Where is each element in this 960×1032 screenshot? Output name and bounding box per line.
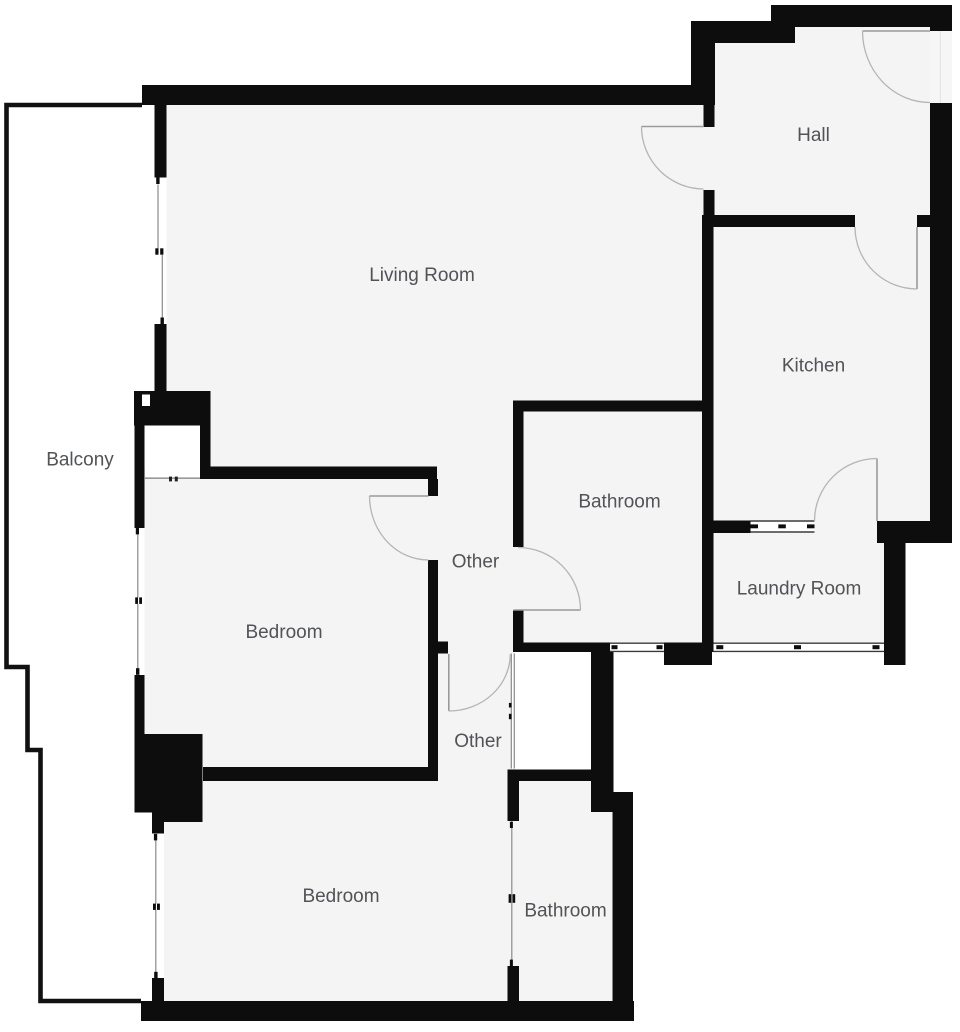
svg-text:Living Room: Living Room xyxy=(369,265,475,286)
svg-text:Kitchen: Kitchen xyxy=(782,356,845,377)
svg-text:Other: Other xyxy=(452,552,500,573)
svg-text:Bathroom: Bathroom xyxy=(578,492,660,513)
svg-text:Balcony: Balcony xyxy=(46,450,114,471)
svg-text:Hall: Hall xyxy=(797,125,830,146)
svg-text:Other: Other xyxy=(454,731,502,752)
svg-text:Laundry Room: Laundry Room xyxy=(737,579,862,600)
svg-text:Bedroom: Bedroom xyxy=(302,886,379,907)
svg-text:Bedroom: Bedroom xyxy=(245,622,322,643)
svg-text:Bathroom: Bathroom xyxy=(524,901,606,922)
